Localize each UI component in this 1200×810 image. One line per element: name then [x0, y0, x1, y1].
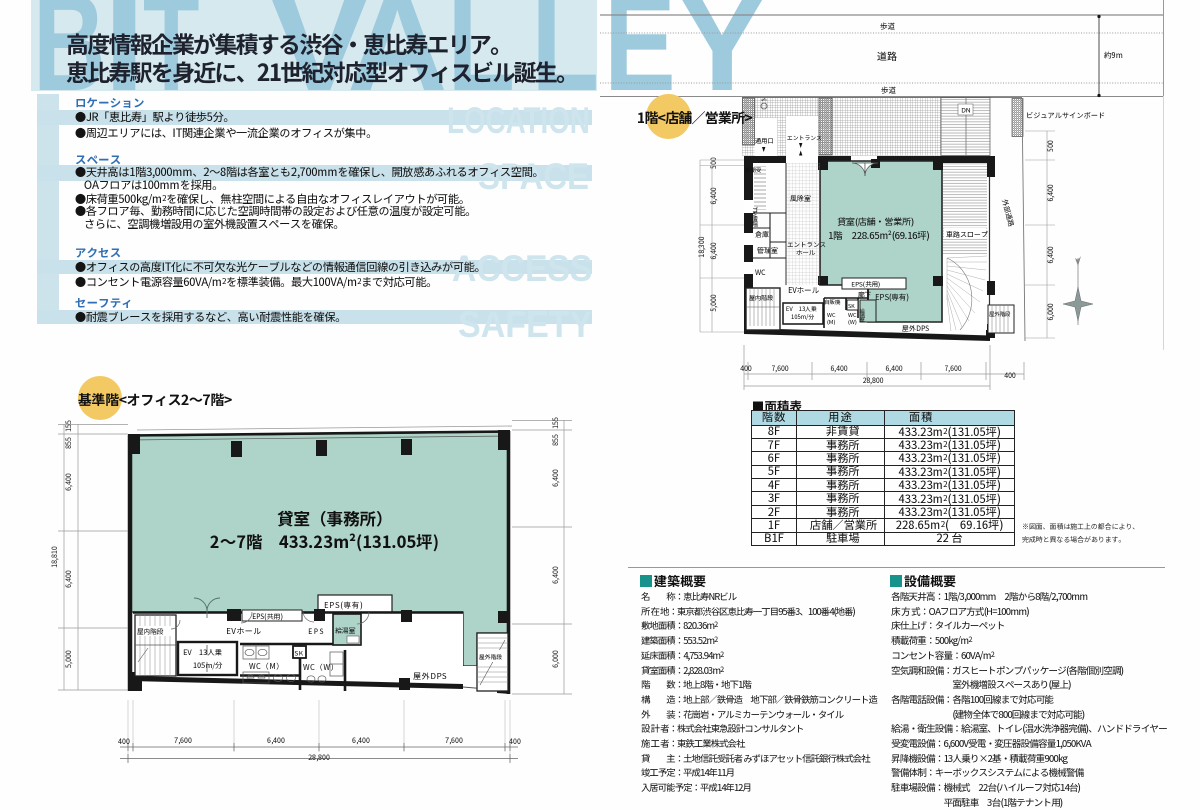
- svg-text:6,400: 6,400: [64, 473, 74, 491]
- svg-text:屋外階段: 屋外階段: [479, 652, 502, 661]
- svg-text:855: 855: [551, 434, 561, 446]
- svg-text:6,400: 6,400: [551, 566, 561, 584]
- svg-text:6,400: 6,400: [551, 469, 561, 487]
- svg-text:給湯室: 給湯室: [335, 625, 356, 635]
- svg-text:2〜7階 433.23m²(131.05坪): 2〜7階 433.23m²(131.05坪): [210, 529, 439, 553]
- svg-text:400: 400: [509, 737, 521, 747]
- svg-text:SK: SK: [295, 648, 304, 658]
- svg-text:6,400: 6,400: [352, 736, 370, 746]
- svg-text:5,000: 5,000: [64, 650, 74, 668]
- svg-text:400: 400: [118, 737, 130, 747]
- svg-text:7,600: 7,600: [174, 736, 192, 746]
- svg-text:EPS(共用): EPS(共用): [252, 611, 283, 621]
- svg-text:EPS(専有): EPS(専有): [324, 600, 363, 611]
- svg-text:EV 13人乗: EV 13人乗: [183, 647, 223, 658]
- svg-text:6,400: 6,400: [267, 736, 285, 746]
- svg-text:6,400: 6,400: [64, 570, 74, 588]
- svg-text:155: 155: [551, 417, 561, 429]
- svg-text:855: 855: [64, 437, 74, 449]
- svg-text:EPS: EPS: [308, 627, 325, 637]
- svg-text:6,000: 6,000: [551, 650, 561, 668]
- svg-text:28,800: 28,800: [308, 753, 330, 763]
- svg-text:屋内階段: 屋内階段: [137, 626, 164, 636]
- svg-text:18,810: 18,810: [50, 546, 60, 568]
- svg-text:EVホール: EVホール: [226, 626, 262, 637]
- svg-text:屋外DPS: 屋外DPS: [413, 671, 447, 682]
- svg-text:貸室（事務所）: 貸室（事務所）: [277, 506, 393, 530]
- svg-text:7,600: 7,600: [445, 736, 463, 746]
- svg-text:WC（M）: WC（M）: [249, 661, 284, 672]
- svg-text:105m/分: 105m/分: [193, 660, 223, 671]
